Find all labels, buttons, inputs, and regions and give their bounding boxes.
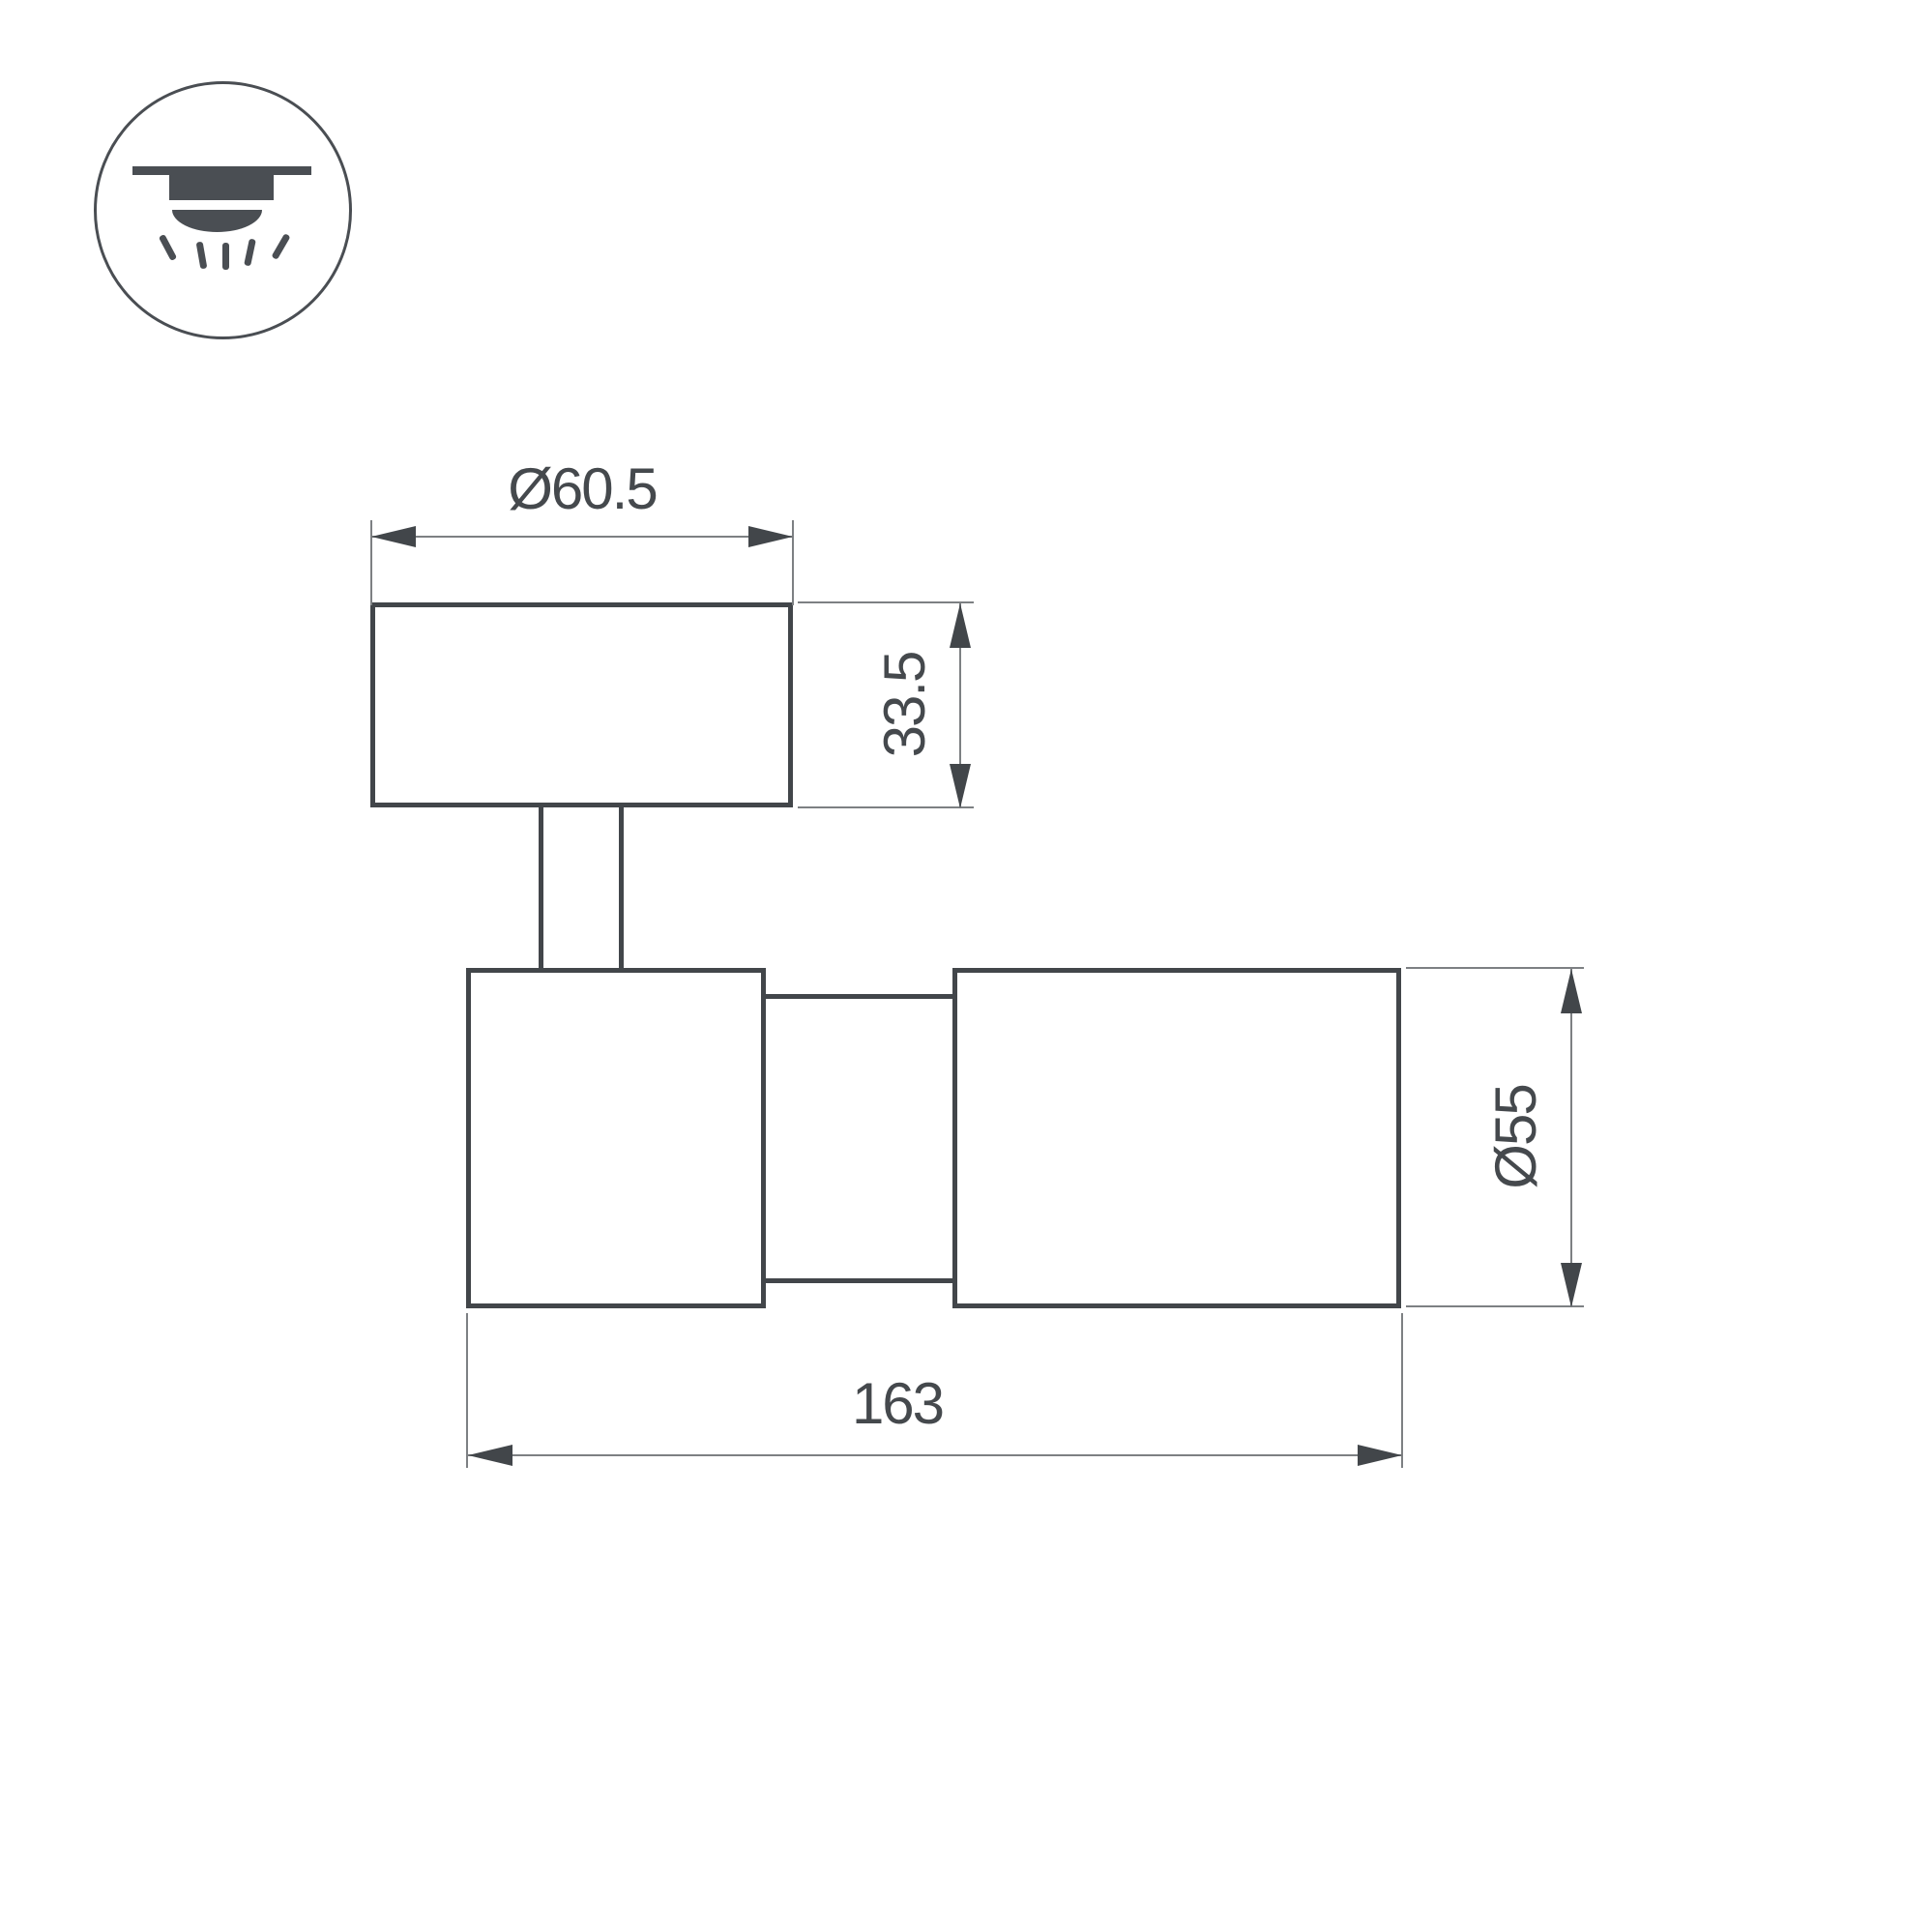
dimension-line [371,536,793,538]
lamp-rear-outline [952,968,1401,1308]
arrowhead-left [468,1445,512,1466]
swivel-stem-outline [539,807,624,970]
arrowhead-up [950,603,971,648]
dimension-label-base-height: 33.5 [876,560,934,850]
dimension-label-base-diameter: Ø60.5 [437,460,727,518]
arrowhead-left [371,526,416,547]
arrowhead-right [1358,1445,1402,1466]
icon-light-ray [222,243,229,270]
icon-fixture-body [169,175,274,200]
arrowhead-down [1561,1263,1582,1307]
lamp-head-outline [466,968,766,1308]
extension-line [1406,967,1584,969]
arrowhead-down [950,764,971,808]
dimension-label-body-length: 163 [752,1375,1042,1433]
body-connector-outline [766,994,952,1283]
dimension-label-body-diameter: Ø55 [1487,992,1545,1282]
dimension-line [468,1454,1402,1456]
arrowhead-right [748,526,793,547]
extension-line [1406,1305,1584,1307]
dimension-line [1570,969,1572,1306]
ceiling-mount-icon [0,0,387,387]
icon-ceiling-line [132,166,311,175]
mount-base-outline [370,602,793,807]
technical-drawing-canvas: Ø60.5 33.5 Ø55 163 [0,0,1932,1932]
arrowhead-up [1561,969,1582,1013]
